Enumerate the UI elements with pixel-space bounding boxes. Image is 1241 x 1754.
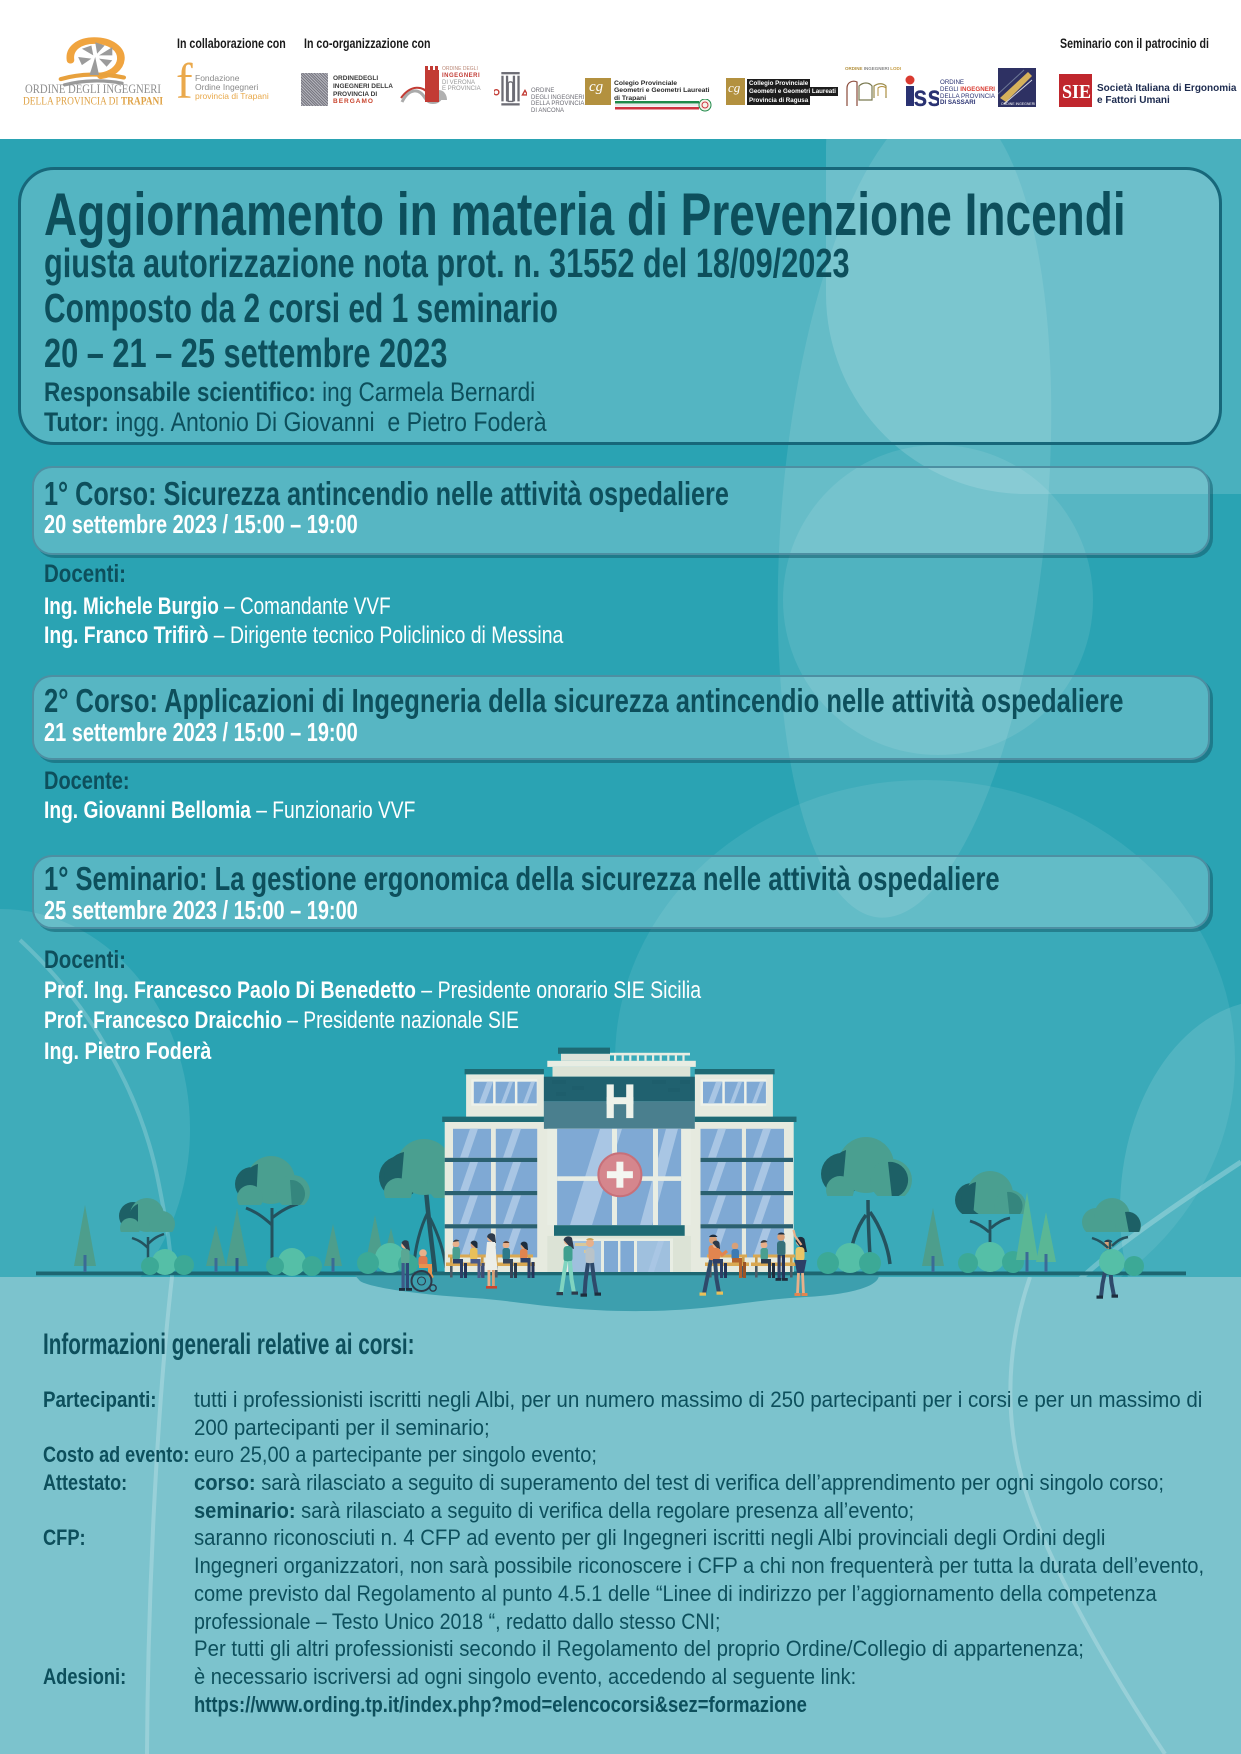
svg-text:ORDINE INGEGNERI: ORDINE INGEGNERI xyxy=(1001,102,1035,106)
svg-text:ss: ss xyxy=(913,79,939,108)
svg-text:DELLA PROVINCIA DI TRAPANI: DELLA PROVINCIA DI TRAPANI xyxy=(23,96,163,108)
svg-text:ORDINE DEGLI INGEGNERI: ORDINE DEGLI INGEGNERI xyxy=(25,82,161,96)
